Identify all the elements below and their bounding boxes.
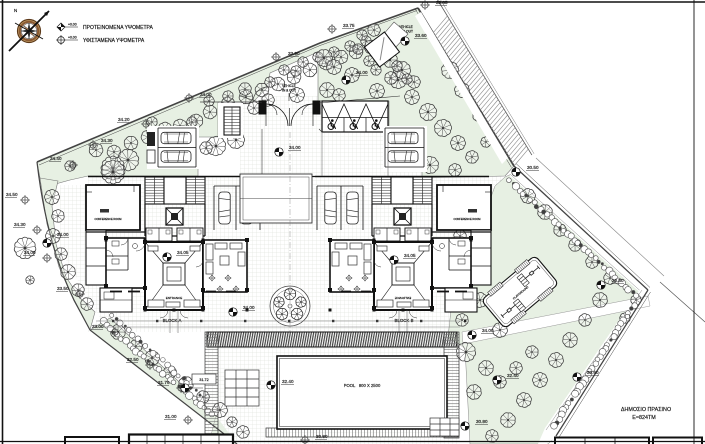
svg-text:34.00: 34.00 (356, 70, 368, 75)
svg-text:34.00: 34.00 (24, 250, 36, 255)
svg-text:31.72: 31.72 (199, 378, 209, 382)
svg-text:34.30: 34.30 (101, 138, 113, 143)
svg-text:33.75: 33.75 (343, 23, 355, 28)
svg-text:32.40: 32.40 (282, 379, 294, 384)
svg-text:+0.00: +0.00 (68, 36, 77, 40)
svg-text:ENTRANCE: ENTRANCE (395, 296, 412, 300)
svg-text:30.80: 30.80 (316, 434, 328, 439)
svg-text:CONFERENCE ROOM: CONFERENCE ROOM (454, 217, 481, 221)
svg-text:34.40: 34.40 (50, 156, 62, 161)
svg-text:CONFERENCE ROOM: CONFERENCE ROOM (95, 217, 122, 221)
svg-text:34.30: 34.30 (14, 222, 26, 227)
svg-text:ΥΦΙΣΤΑΜΕΝΑ ΥΨΟΜΕΤΡΑ: ΥΦΙΣΤΑΜΕΝΑ ΥΨΟΜΕΤΡΑ (83, 38, 145, 44)
svg-text:32.50: 32.50 (127, 357, 139, 362)
svg-text:BLOCK B: BLOCK B (394, 318, 413, 323)
svg-text:VEHICLE: VEHICLE (282, 84, 296, 88)
svg-text:ΔΗΜΟΣΙΟ ΠΡΑΣΙΝΟ: ΔΗΜΟΣΙΟ ΠΡΑΣΙΝΟ (621, 407, 671, 413)
svg-text:34.50: 34.50 (6, 192, 18, 197)
svg-text:33.60: 33.60 (415, 33, 427, 38)
svg-text:33.00: 33.00 (92, 324, 104, 329)
svg-text:34.00: 34.00 (482, 328, 494, 333)
svg-text:33.50: 33.50 (57, 286, 69, 291)
svg-text:POOL 800 X 2500: POOL 800 X 2500 (344, 383, 381, 388)
svg-text:34.00: 34.00 (200, 92, 212, 97)
svg-text:31.00: 31.00 (165, 414, 177, 419)
svg-text:+0.00: +0.00 (68, 23, 77, 27)
svg-text:N: N (14, 8, 17, 13)
svg-text:34.00: 34.00 (243, 305, 255, 310)
svg-text:30.50: 30.50 (527, 165, 539, 170)
svg-text:34.00: 34.00 (289, 145, 301, 150)
svg-text:34.05: 34.05 (404, 253, 416, 258)
svg-text:33.90: 33.90 (288, 51, 300, 56)
svg-text:30.80: 30.80 (476, 419, 488, 424)
svg-text:IN & OUT: IN & OUT (282, 89, 296, 93)
svg-text:30.60: 30.60 (587, 370, 599, 375)
svg-text:31.70: 31.70 (158, 380, 170, 385)
svg-text:E=824TM: E=824TM (632, 415, 656, 421)
svg-text:30.50: 30.50 (612, 278, 624, 283)
svg-text:32.40: 32.40 (507, 373, 519, 378)
svg-text:BLOCK A: BLOCK A (163, 318, 182, 323)
svg-text:ENTRANCE: ENTRANCE (166, 296, 183, 300)
svg-text:34.20: 34.20 (118, 117, 130, 122)
svg-text:34.00: 34.00 (57, 232, 69, 237)
svg-text:ΠΡΟΤΕΙΝΟΜΕΝΑ ΥΨΟΜΕΤΡΑ: ΠΡΟΤΕΙΝΟΜΕΝΑ ΥΨΟΜΕΤΡΑ (83, 25, 154, 31)
svg-text:34.05: 34.05 (177, 250, 189, 255)
